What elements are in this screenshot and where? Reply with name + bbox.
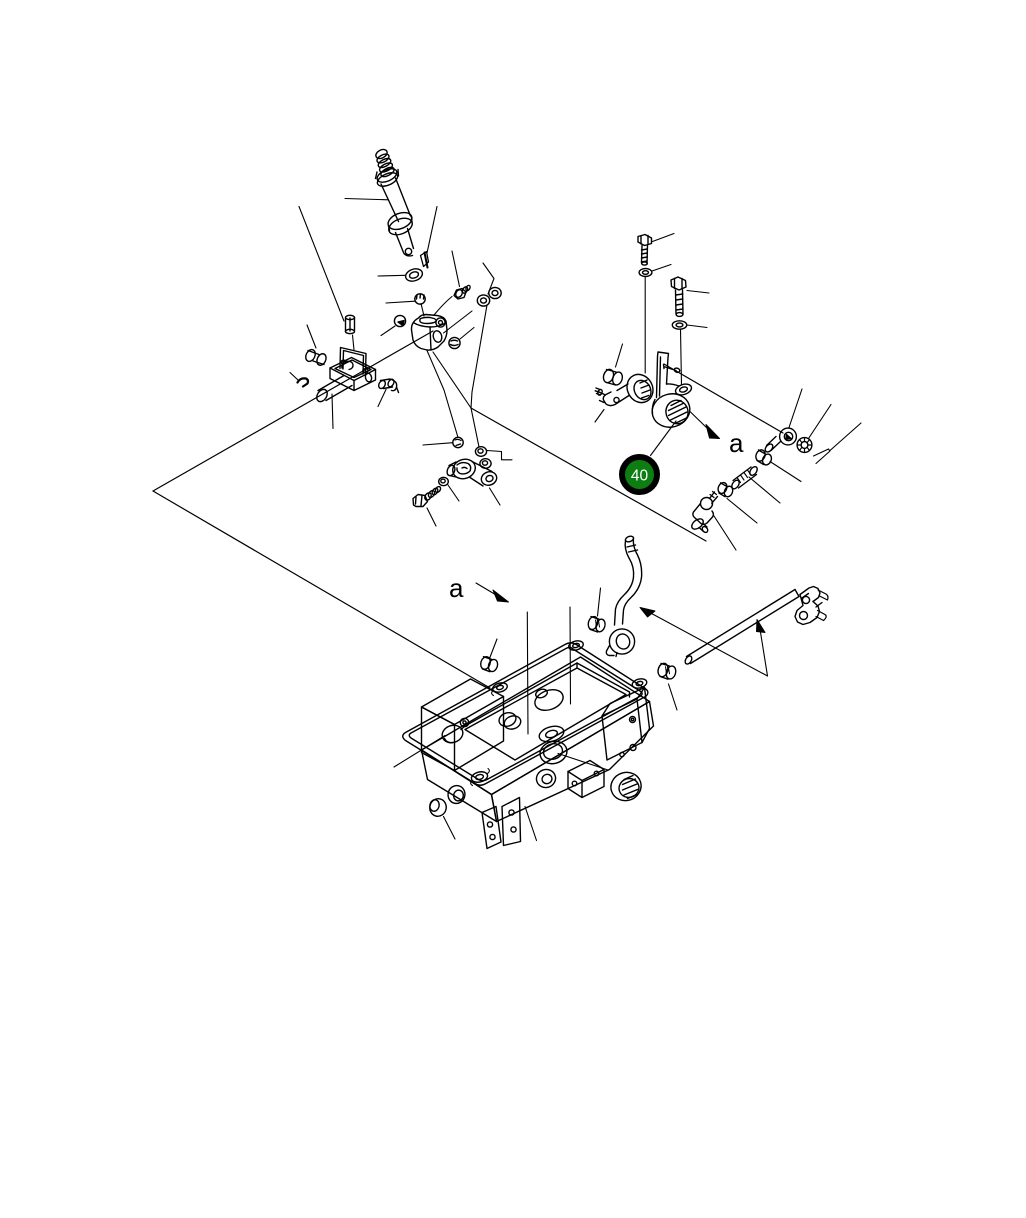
svg-text:40: 40	[631, 468, 649, 485]
svg-text:a: a	[729, 428, 744, 458]
svg-text:a: a	[449, 573, 464, 603]
